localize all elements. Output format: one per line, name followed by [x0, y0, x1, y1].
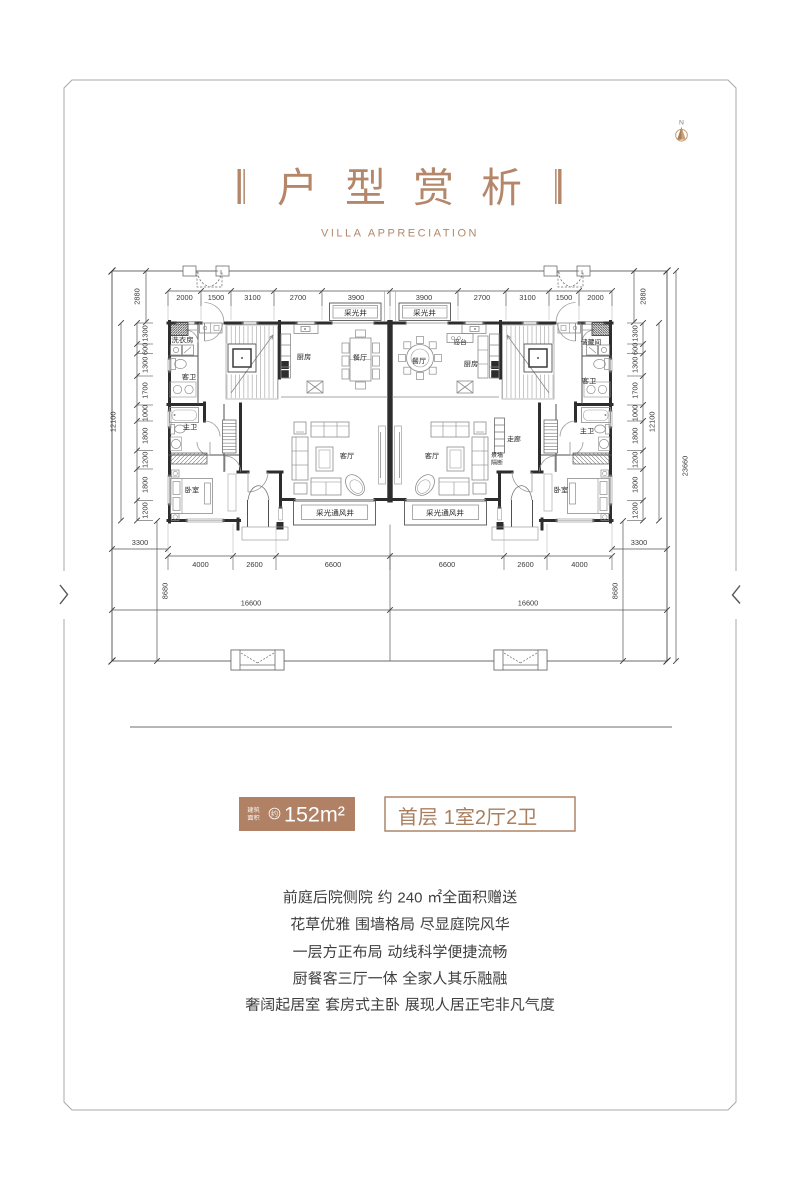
svg-text:N: N: [679, 120, 684, 127]
svg-text:1200: 1200: [631, 502, 640, 518]
svg-text:2600: 2600: [246, 560, 262, 569]
svg-text:1300: 1300: [141, 325, 150, 341]
svg-text:16600: 16600: [241, 599, 262, 608]
svg-text:1200: 1200: [141, 502, 150, 518]
svg-text:2880: 2880: [639, 288, 648, 304]
svg-text:23660: 23660: [681, 456, 690, 477]
svg-text:3300: 3300: [631, 538, 647, 547]
svg-text:1300: 1300: [141, 357, 150, 373]
svg-text:1800: 1800: [631, 477, 640, 493]
svg-text:2: 2: [506, 807, 517, 829]
svg-text:1200: 1200: [631, 452, 640, 468]
svg-text:1300: 1300: [631, 357, 640, 373]
svg-text:1800: 1800: [141, 428, 150, 444]
svg-text:12100: 12100: [648, 412, 657, 433]
svg-text:16600: 16600: [518, 599, 539, 608]
svg-text:2000: 2000: [176, 293, 192, 302]
svg-text:240: 240: [397, 889, 422, 906]
svg-text:8680: 8680: [161, 583, 170, 599]
svg-text:6600: 6600: [439, 560, 455, 569]
svg-text:600: 600: [631, 343, 640, 355]
svg-text:2600: 2600: [517, 560, 533, 569]
svg-text:6600: 6600: [325, 560, 341, 569]
svg-text:2700: 2700: [290, 293, 306, 302]
svg-text:1300: 1300: [631, 325, 640, 341]
svg-text:1500: 1500: [208, 293, 224, 302]
svg-text:8680: 8680: [611, 583, 620, 599]
svg-text:2000: 2000: [587, 293, 603, 302]
svg-text:12100: 12100: [109, 412, 118, 433]
svg-text:1500: 1500: [556, 293, 572, 302]
svg-text:1: 1: [444, 807, 455, 829]
svg-text:3900: 3900: [348, 293, 364, 302]
svg-text:1000: 1000: [631, 405, 640, 421]
svg-text:1000: 1000: [141, 405, 150, 421]
svg-text:1700: 1700: [141, 382, 150, 398]
svg-text:3100: 3100: [519, 293, 535, 302]
svg-text:600: 600: [141, 343, 150, 355]
svg-text:3300: 3300: [132, 538, 148, 547]
svg-text:152m²: 152m²: [284, 803, 345, 827]
svg-text:1700: 1700: [631, 382, 640, 398]
svg-text:1800: 1800: [141, 477, 150, 493]
svg-text:2: 2: [475, 807, 486, 829]
svg-text:4000: 4000: [192, 560, 208, 569]
svg-text:3900: 3900: [416, 293, 432, 302]
svg-text:3100: 3100: [244, 293, 260, 302]
svg-text:4000: 4000: [571, 560, 587, 569]
svg-text:2700: 2700: [474, 293, 490, 302]
svg-text:1800: 1800: [631, 428, 640, 444]
svg-text:VILLA APPRECIATION: VILLA APPRECIATION: [321, 228, 479, 240]
svg-text:1200: 1200: [141, 452, 150, 468]
svg-text:2880: 2880: [133, 288, 142, 304]
